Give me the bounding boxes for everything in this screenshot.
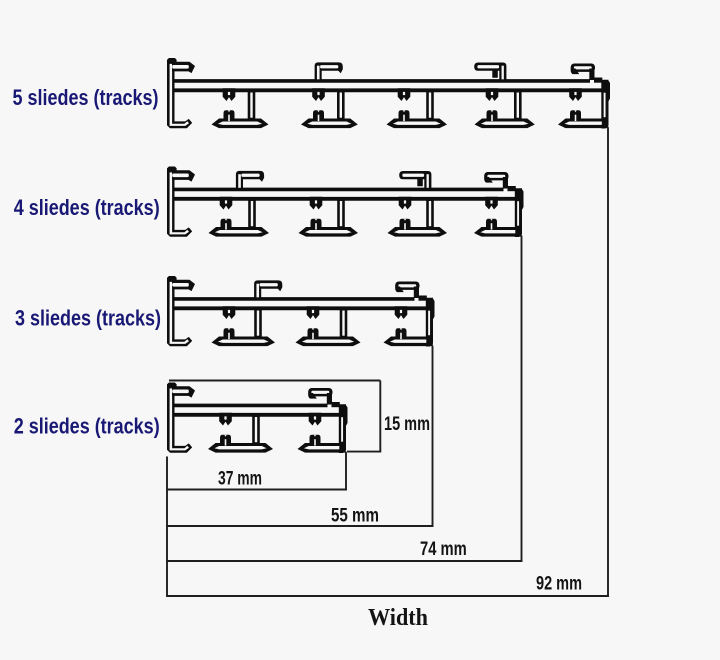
svg-text:3 sliedes (tracks): 3 sliedes (tracks) bbox=[15, 306, 161, 331]
svg-text:92 mm: 92 mm bbox=[536, 573, 582, 595]
svg-text:4 sliedes (tracks): 4 sliedes (tracks) bbox=[14, 195, 160, 220]
svg-text:2 sliedes (tracks): 2 sliedes (tracks) bbox=[14, 414, 160, 439]
svg-text:15 mm: 15 mm bbox=[384, 413, 430, 435]
svg-text:Width: Width bbox=[368, 604, 428, 631]
svg-text:37 mm: 37 mm bbox=[218, 468, 262, 490]
svg-text:55 mm: 55 mm bbox=[331, 505, 379, 527]
svg-text:5 sliedes (tracks): 5 sliedes (tracks) bbox=[13, 85, 159, 110]
svg-text:74 mm: 74 mm bbox=[420, 538, 467, 560]
